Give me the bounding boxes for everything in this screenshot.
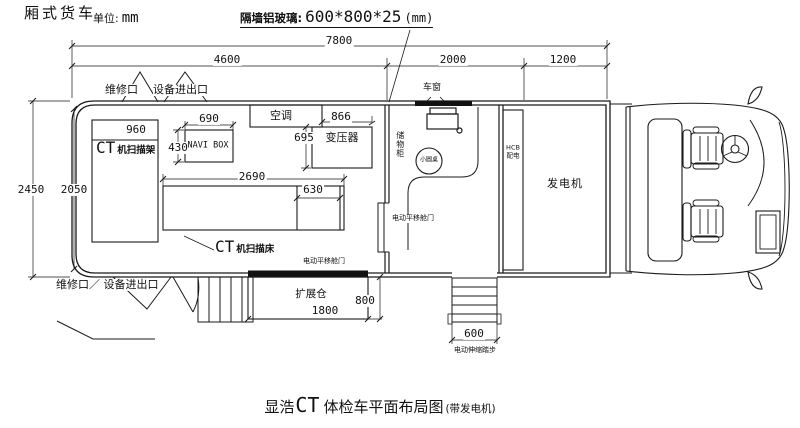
mirror-top-icon	[748, 87, 762, 104]
label-top-equipment-door: 设备进出口	[153, 84, 208, 96]
label-generator: 发电机	[547, 178, 583, 190]
glass-note-suffix: (mm)	[404, 12, 433, 25]
caption-brand: 显浩	[264, 399, 294, 416]
label-expansion-door: 电动平移舱门	[302, 258, 346, 266]
sliding-door-bar	[248, 271, 368, 278]
label-expansion-bay: 扩展仓	[295, 289, 327, 301]
dim-expansion-length: 1800	[311, 305, 340, 317]
glass-note-value: 600*800*25	[305, 8, 401, 26]
passenger-seat-icon	[683, 200, 723, 242]
label-top-maintenance-door: 维修口	[105, 84, 138, 96]
window-bar-icon	[415, 97, 472, 106]
driver-seat-icon	[683, 127, 723, 169]
label-bottom-access-doors: 维修口／ 设备进出口	[56, 279, 159, 291]
dim-body-height-inner: 2050	[60, 184, 89, 196]
label-scan-room-door: 电动平移舱门	[391, 215, 435, 223]
dim-expansion-depth: 800	[354, 295, 376, 307]
dim-transformer-depth: 695	[293, 132, 315, 144]
truck-cab	[610, 87, 789, 289]
glass-note: 隔墙铝玻璃: 600*800*25 (mm)	[240, 8, 433, 28]
dim-navi-box-depth: 430	[167, 142, 189, 154]
dim-bed-length: 2690	[238, 171, 267, 183]
dim-total-length: 7800	[325, 35, 354, 47]
power-cabinet-outline	[503, 110, 523, 270]
label-storage-cabinet: 储物柜	[395, 131, 404, 158]
label-ct-bed: CT 机扫描床	[215, 238, 274, 256]
unit-prefix: 单位:	[93, 13, 119, 25]
scan-room-door-icon	[378, 203, 389, 252]
dim-mid-section: 2000	[439, 54, 468, 66]
desk-icon	[427, 108, 462, 133]
label-transformer: 变压器	[326, 132, 359, 144]
label-air-conditioner: 空调	[270, 110, 292, 122]
dim-transformer-width: 866	[330, 111, 352, 123]
unit-label: 单位: mm	[93, 11, 139, 26]
label-ct-gantry: CT 机扫描架	[96, 139, 155, 157]
ct-bed-prefix: CT	[215, 238, 234, 256]
drawing-title: 厢式货车	[24, 5, 96, 22]
ct-gantry-text: 机扫描架	[117, 146, 155, 156]
label-cab-window: 车窗	[423, 84, 441, 94]
caption-ct: CT	[295, 394, 319, 416]
label-retractable-steps: 电动伸缩踏步	[453, 347, 497, 355]
label-navi-box: NAVI BOX	[188, 141, 229, 150]
stairs-right-icon	[448, 270, 501, 324]
label-power-cabinet: HCB 配电	[506, 145, 520, 160]
dim-body-height-outer: 2450	[17, 184, 46, 196]
ct-bed-text: 机扫描床	[236, 245, 274, 255]
dim-rear-section: 4600	[213, 54, 242, 66]
mirror-bottom-icon	[748, 272, 762, 289]
power-cabinet-line2: 配电	[506, 152, 520, 160]
dim-navi-box-width: 690	[198, 113, 220, 125]
dim-gantry-width: 960	[125, 124, 147, 136]
steering-wheel-icon	[722, 136, 749, 163]
caption-title: 体检车平面布局图	[323, 399, 443, 416]
dim-front-section: 1200	[549, 54, 578, 66]
caption-suffix: (带发电机)	[445, 404, 495, 416]
label-round-table: 小圆桌	[420, 158, 438, 165]
drawing-caption: 显浩 CT 体检车平面布局图 (带发电机)	[264, 394, 495, 416]
floor-plan-drawing: 厢式货车 单位: mm 隔墙铝玻璃: 600*800*25 (mm) 7800 …	[0, 0, 800, 428]
glass-note-prefix: 隔墙铝玻璃:	[240, 12, 302, 25]
dim-bed-width: 630	[302, 184, 324, 196]
unit-value: mm	[122, 11, 139, 26]
ct-gantry-prefix: CT	[96, 139, 115, 157]
dim-steps-width: 600	[463, 328, 485, 340]
stairs-left-icon	[198, 277, 253, 322]
